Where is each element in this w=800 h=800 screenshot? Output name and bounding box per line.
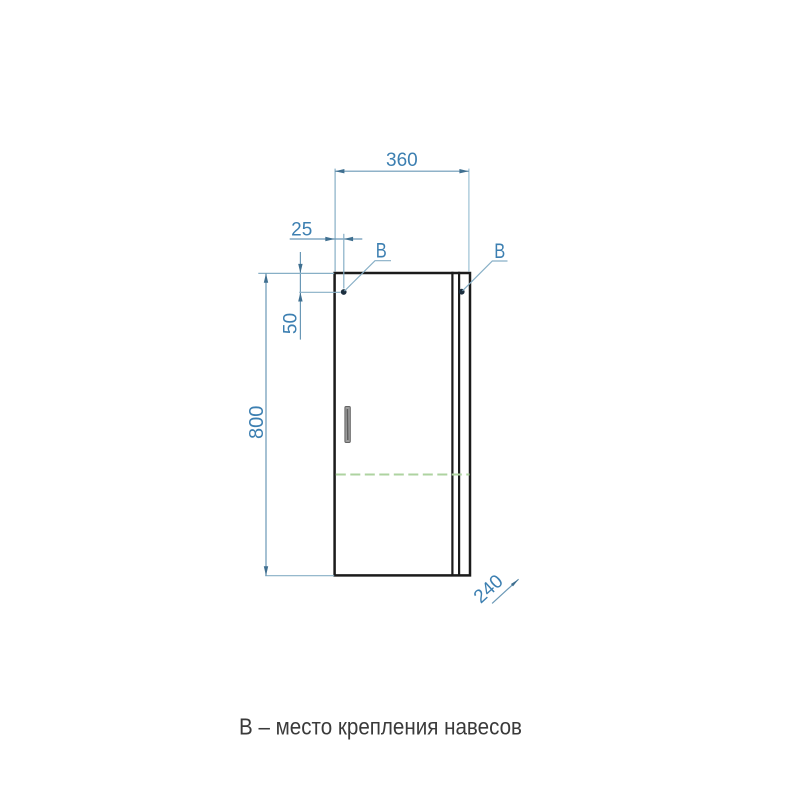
svg-text:360: 360 (386, 150, 418, 171)
svg-text:800: 800 (246, 406, 268, 439)
svg-text:В: В (376, 240, 387, 263)
svg-text:50: 50 (281, 313, 302, 334)
svg-text:В – место крепления навесов: В – место крепления навесов (239, 714, 522, 740)
svg-text:240: 240 (470, 571, 508, 608)
svg-text:25: 25 (291, 220, 312, 241)
svg-text:В: В (494, 240, 505, 263)
